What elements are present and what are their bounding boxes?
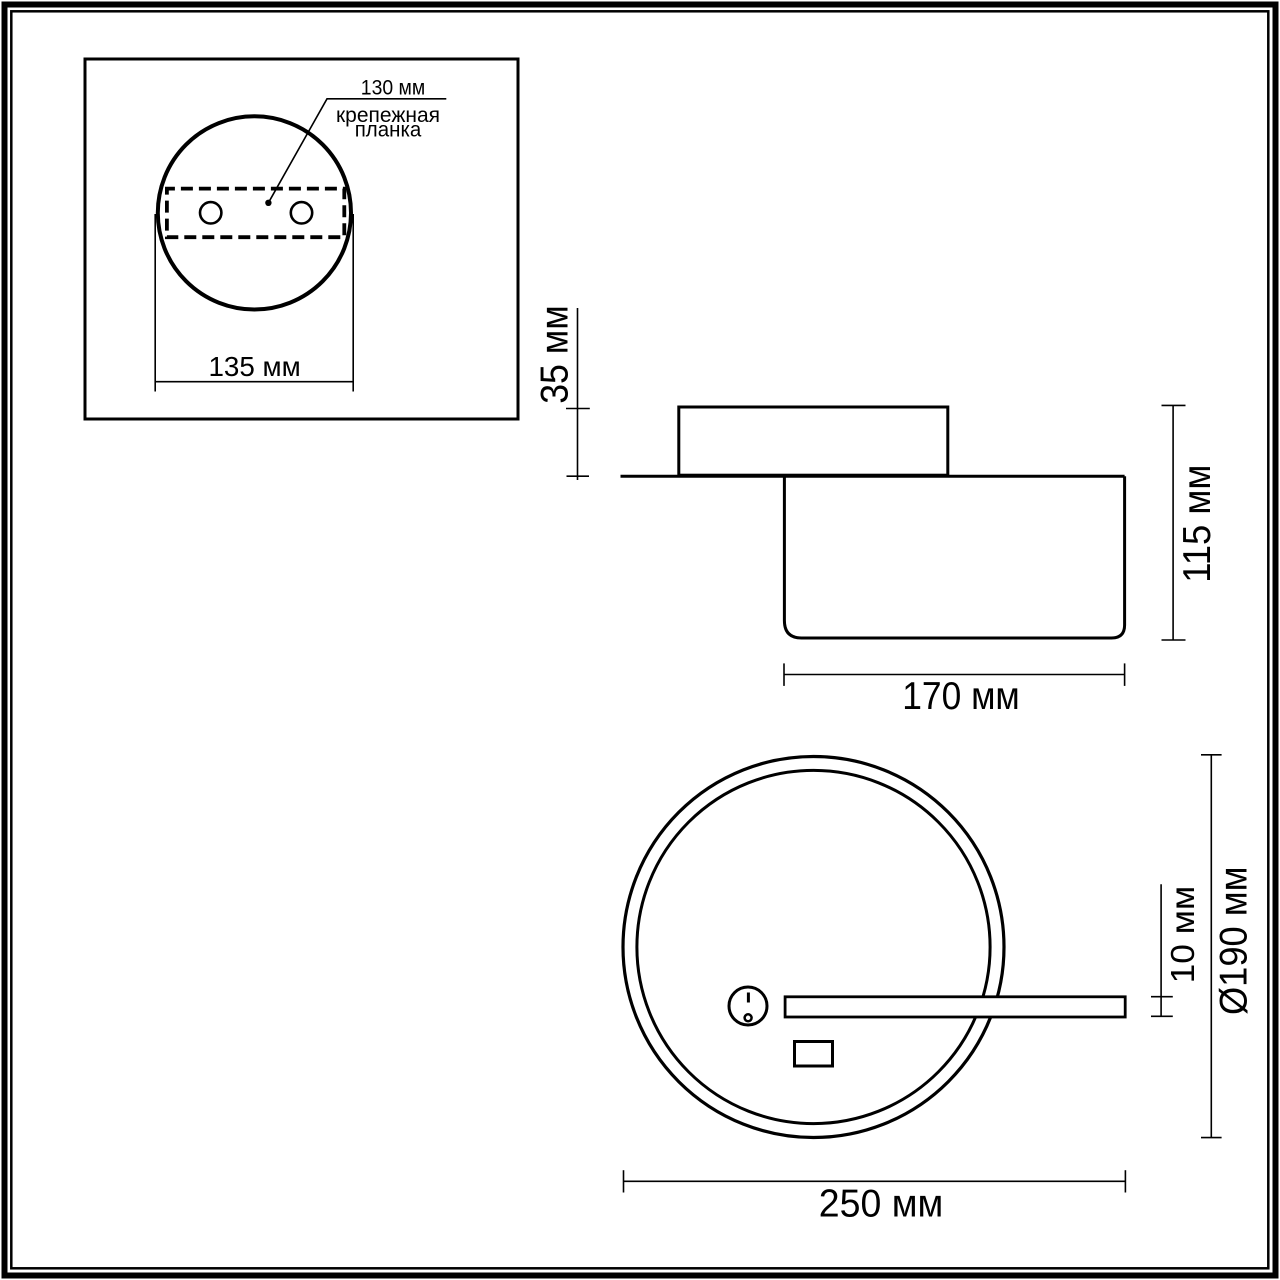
svg-text:250 мм: 250 мм [819, 1182, 944, 1225]
svg-text:Ø190 мм: Ø190 мм [1213, 866, 1256, 1015]
svg-text:135 мм: 135 мм [208, 351, 300, 382]
svg-text:115 мм: 115 мм [1176, 465, 1219, 583]
svg-text:планка: планка [355, 119, 422, 142]
svg-text:10 мм: 10 мм [1164, 886, 1201, 984]
svg-text:35 мм: 35 мм [533, 305, 576, 404]
svg-text:130 мм: 130 мм [361, 76, 425, 99]
svg-text:170 мм: 170 мм [902, 675, 1020, 718]
